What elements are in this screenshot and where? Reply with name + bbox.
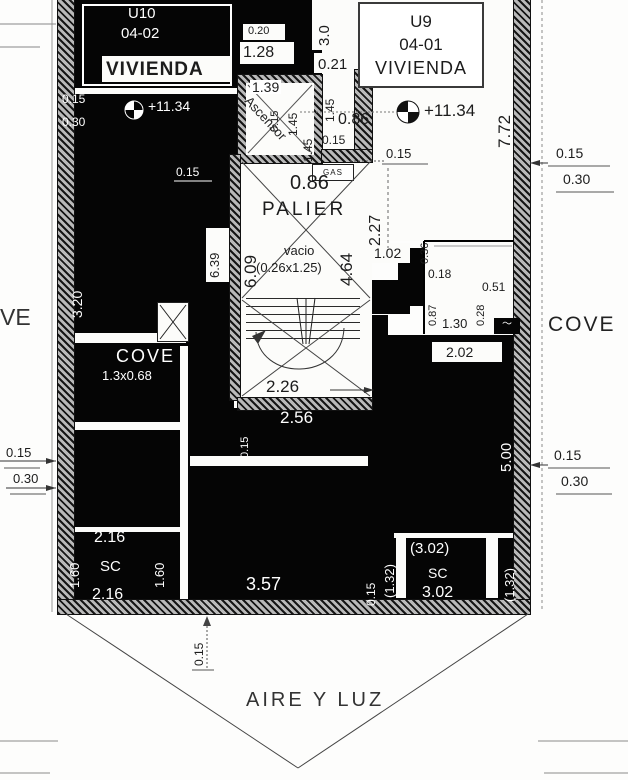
dim: 0.30 (561, 474, 588, 488)
core-wall-left (230, 155, 240, 400)
outer-wall-right (514, 0, 530, 612)
room-aire-y-luz: AIRE Y LUZ (246, 690, 384, 710)
dim: 0.15 (386, 147, 411, 160)
dim: 0.15 (240, 437, 251, 458)
dim: 0.15 (556, 146, 583, 160)
u9-id: 04-01 (399, 36, 442, 53)
dim: (1.32) (383, 564, 396, 598)
dim: 1.45 (324, 99, 336, 122)
dim: 3.57 (246, 575, 281, 593)
dim: 2.56 (280, 409, 313, 426)
dim: 0.86 (338, 112, 369, 128)
dim: (3.02) (410, 541, 449, 556)
dim: 3.20 (70, 291, 84, 318)
dim: 0.30 (13, 472, 38, 485)
dim: 1.60 (68, 563, 81, 588)
dim: 3.0 (317, 25, 332, 46)
room-cove-partial: VE (0, 306, 31, 329)
sc-left: SC (100, 559, 121, 574)
cove-left-size: 1.3x0.68 (102, 369, 152, 382)
dim: 1.39 (250, 80, 281, 94)
vacio-size: (0.26x1.25) (256, 261, 322, 274)
dim: 0.15 (176, 166, 199, 178)
duct-shaft (158, 303, 188, 341)
dim: 3.02 (422, 585, 453, 601)
dim: 7.72 (496, 115, 513, 148)
dim: 0.87 (428, 305, 439, 326)
dim: 0.30 (62, 116, 85, 128)
partition-strip (180, 346, 188, 600)
dim: 6.09 (242, 255, 259, 288)
outer-wall-bottom (58, 600, 530, 614)
dim: 0.28 (476, 305, 487, 326)
strip (74, 88, 238, 94)
partition-strip (486, 538, 498, 598)
sc-right: SC (428, 566, 447, 580)
dim: 4.64 (338, 253, 355, 286)
gas-wall (322, 150, 372, 162)
dim: 2.16 (92, 587, 123, 603)
unit-label-box-u9: U9 04-01 VIVIENDA (358, 2, 484, 88)
u10-type: VIVIENDA (106, 60, 204, 79)
room-cove-right: COVE (548, 314, 616, 335)
dim: 5.00 (499, 443, 514, 472)
dim: 0.18 (428, 268, 451, 280)
left-of-stair-mass (184, 346, 234, 410)
dim: 1.28 (243, 45, 274, 61)
dim: 1.30 (442, 317, 467, 330)
u10-code: U10 (128, 6, 156, 21)
dim: 1.60 (153, 563, 166, 588)
dim: 0.15 (554, 448, 581, 462)
level-u9: +11.34 (424, 102, 475, 119)
mid-bottom-mass (186, 408, 370, 600)
room-cove-left: COVE (116, 347, 175, 365)
vent-box: 〜 (494, 318, 520, 334)
dim: 0.15 (62, 93, 85, 105)
dim: 1.02 (374, 246, 401, 260)
dim: 6.39 (208, 253, 221, 278)
floor-plan-scan: GAS 〜 (0, 0, 628, 780)
dim: 1.45 (302, 139, 314, 162)
corridor-floor (372, 162, 514, 241)
stair-treads (246, 298, 360, 342)
dim: 0.21 (318, 57, 347, 72)
dim: 0.15 (6, 446, 31, 459)
dim: 2.27 (368, 215, 384, 246)
dim: 0.86 (290, 173, 329, 193)
dim: 0.15 (322, 134, 345, 146)
room-palier: PALIER (262, 200, 346, 219)
dim: (1.32) (503, 568, 516, 602)
dim: 1.45 (287, 113, 299, 136)
vacio-label: vacio (284, 244, 314, 257)
dim: 0.30 (563, 172, 590, 186)
dim: 2.16 (94, 530, 125, 546)
dim: 0.15 (193, 643, 205, 666)
u10-id: 04-02 (121, 26, 159, 41)
dim: 2.02 (446, 345, 473, 359)
partition-strip (74, 422, 180, 430)
partition-strip (396, 538, 406, 598)
partition-strip (74, 527, 180, 532)
unit-u10-lower-mass (74, 94, 238, 236)
u9-type: VIVIENDA (375, 59, 467, 77)
dim: 0.15 (270, 111, 281, 132)
partition-strip (190, 456, 368, 466)
dim: 0.51 (482, 281, 505, 293)
dim: 2.26 (266, 378, 299, 395)
dim: 0.36 (420, 243, 431, 264)
level-u10: +11.34 (148, 99, 190, 113)
dim: 0.15 (365, 583, 377, 606)
u9-code: U9 (410, 13, 432, 30)
dim: 0.20 (248, 26, 269, 37)
